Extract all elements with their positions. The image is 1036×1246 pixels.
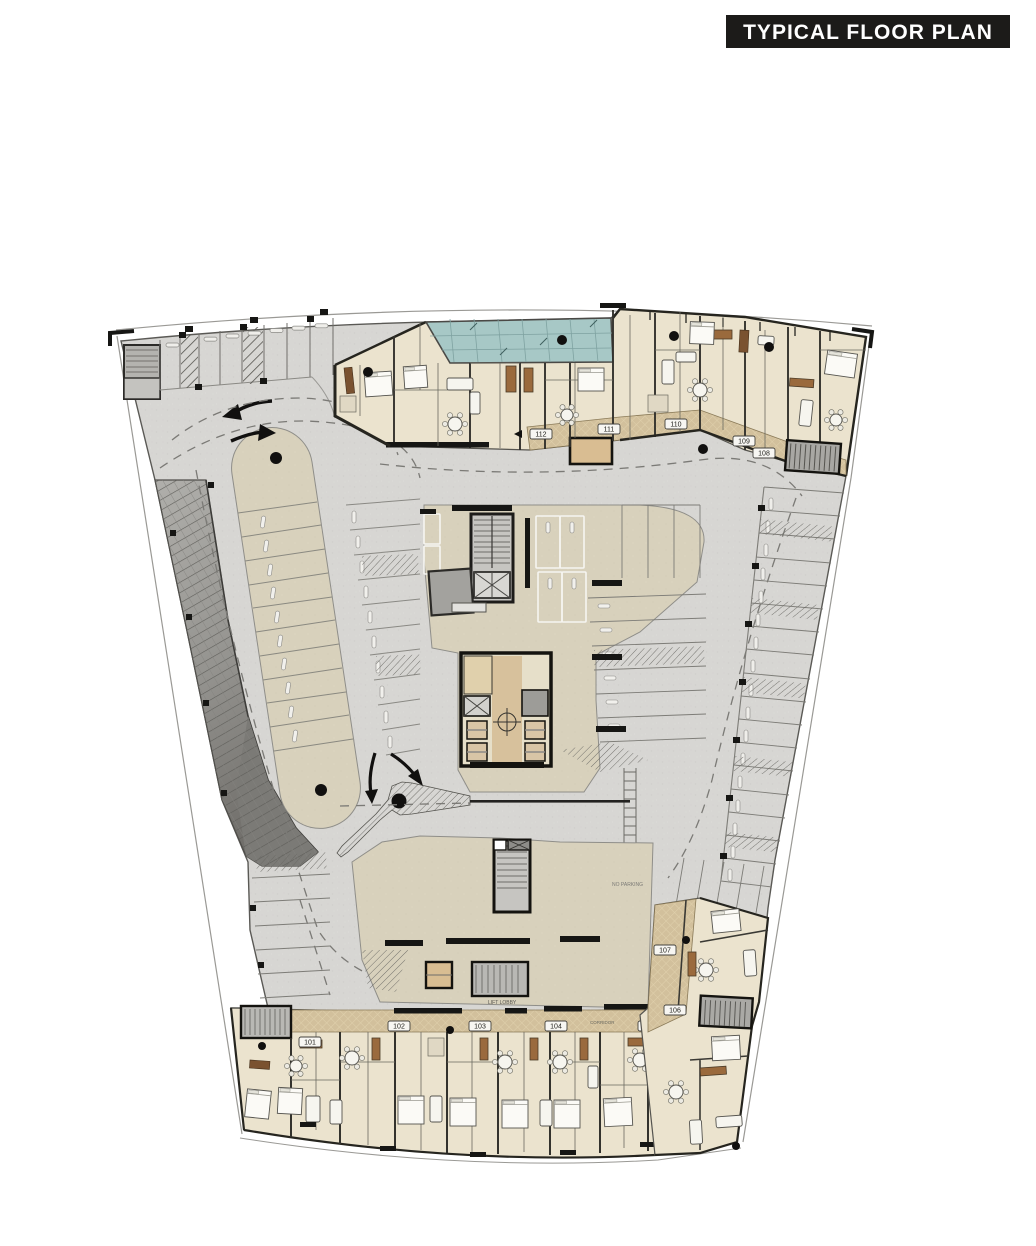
svg-text:NO PARKING: NO PARKING (612, 882, 643, 888)
svg-text:111: 111 (604, 427, 615, 434)
svg-text:101: 101 (304, 1040, 316, 1047)
svg-text:112: 112 (535, 432, 546, 439)
svg-text:CORRIDOR: CORRIDOR (590, 1020, 615, 1025)
svg-text:103: 103 (474, 1024, 486, 1031)
svg-text:106: 106 (669, 1008, 681, 1015)
svg-text:TYPICAL FLOOR PLAN: TYPICAL FLOOR PLAN (743, 21, 993, 44)
svg-text:107: 107 (659, 948, 671, 955)
svg-text:110: 110 (670, 422, 681, 429)
svg-text:102: 102 (393, 1024, 405, 1031)
svg-text:104: 104 (550, 1024, 562, 1031)
svg-text:109: 109 (738, 439, 750, 446)
svg-text:LIFT LOBBY: LIFT LOBBY (488, 1000, 517, 1006)
svg-text:108: 108 (758, 451, 770, 458)
